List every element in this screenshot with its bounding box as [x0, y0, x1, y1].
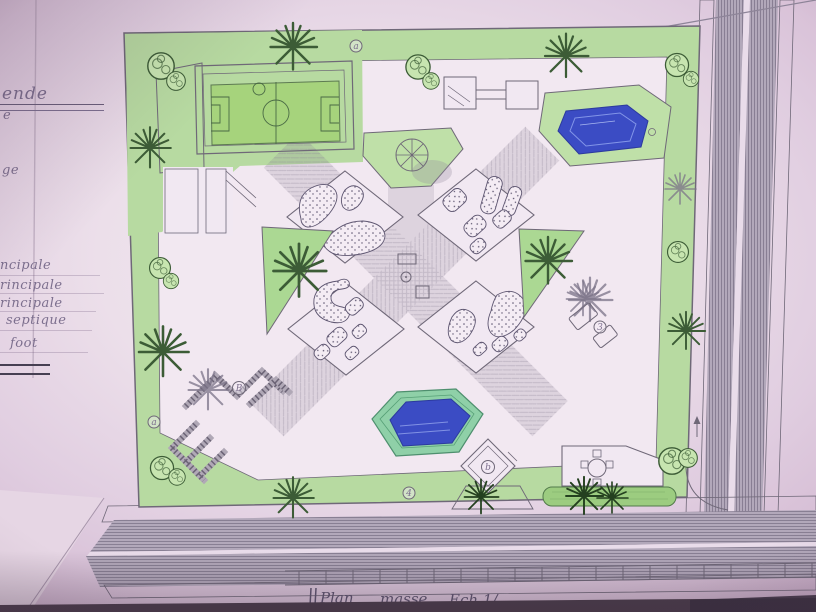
palm-tree-icon — [274, 244, 327, 297]
palm-tree-icon — [597, 482, 628, 513]
label-top-band: a — [350, 40, 362, 52]
legend-item: rincipale — [0, 296, 63, 311]
palm-tree-icon — [545, 34, 588, 77]
svg-text:3: 3 — [597, 323, 603, 333]
legend-rule-line — [0, 330, 92, 331]
label-kiosk: b — [482, 461, 495, 474]
svg-text:b: b — [485, 463, 491, 473]
palm-tree-icon — [131, 127, 171, 167]
round-tree-icon — [167, 72, 186, 91]
label-south-path: 4 — [403, 487, 415, 499]
palm-tree-icon — [274, 477, 314, 517]
palm-tree-icon — [567, 281, 601, 315]
palm-tree-icon — [526, 237, 573, 284]
palm-tree-icon — [566, 477, 603, 514]
site-plan-drawing: a a B b 3 4 — [0, 0, 816, 612]
palm-tree-icon — [139, 326, 189, 376]
round-tree-icon — [163, 273, 178, 288]
north-arrow-icon — [694, 416, 701, 437]
legend-title: ende — [2, 84, 48, 104]
sheet-margin-corner — [0, 490, 104, 612]
legend-panel: ende e ge ncipale rincipale rincipale se… — [0, 0, 120, 480]
round-tree-icon — [665, 53, 688, 76]
label-pavilion: B — [233, 382, 246, 395]
palm-tree-icon — [465, 479, 499, 513]
svg-text:4: 4 — [405, 489, 412, 499]
palm-tree-icon — [668, 312, 705, 349]
legend-rule-line — [0, 275, 100, 276]
legend-title-underline — [0, 104, 104, 111]
legend-item: e — [3, 108, 11, 123]
palm-tree-icon — [665, 173, 696, 204]
svg-text:B: B — [235, 384, 243, 394]
svg-text:a: a — [353, 42, 358, 52]
legend-item: ncipale — [0, 258, 51, 273]
round-tree-icon — [668, 242, 689, 263]
round-tree-icon — [679, 449, 698, 468]
legend-item: ge — [2, 163, 19, 178]
label-bench: 3 — [594, 321, 606, 333]
site-plan-photo: a a B b 3 4 — [0, 0, 816, 612]
legend-rule-line — [0, 352, 88, 353]
round-tree-icon — [683, 71, 698, 86]
road-east — [686, 0, 794, 518]
legend-item: septique — [6, 313, 66, 328]
legend-thick-line-symbol — [0, 364, 50, 375]
label-left-band: a — [148, 416, 160, 428]
legend-item: rincipale — [0, 278, 63, 293]
round-tree-icon — [423, 73, 440, 90]
park-plan: a a B b 3 4 — [124, 23, 728, 518]
pool-northeast — [539, 85, 671, 166]
legend-item: foot — [10, 336, 38, 351]
photo-bottom-edge-dark — [690, 595, 816, 612]
legend-rule-line — [0, 293, 104, 294]
round-tree-icon — [169, 469, 186, 486]
palm-tree-icon — [271, 23, 318, 70]
svg-text:a: a — [151, 418, 156, 428]
palm-tree-icon — [189, 369, 229, 409]
legend-rule-line — [0, 311, 96, 312]
